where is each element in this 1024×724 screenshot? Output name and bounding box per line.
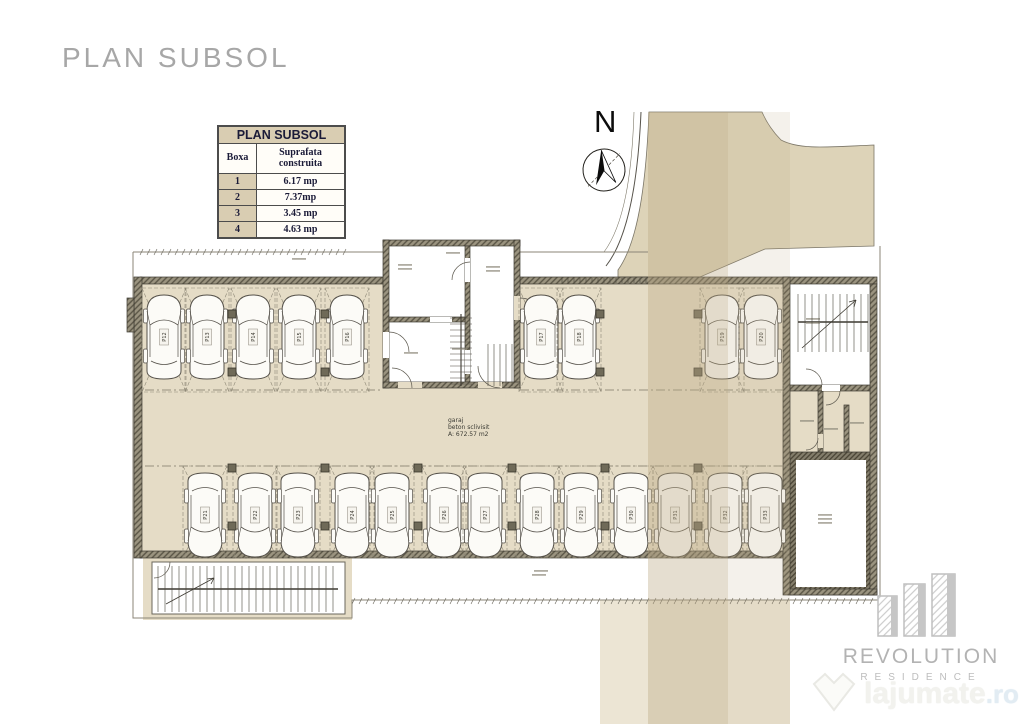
parking-space-label: P21 [201, 507, 210, 523]
north-label: N [594, 104, 616, 139]
watermark-heart-icon [808, 672, 860, 716]
svg-text:P23: P23 [296, 510, 302, 519]
svg-text:P26: P26 [442, 510, 448, 519]
svg-text:P14: P14 [251, 332, 257, 341]
parking-space-label: P13 [203, 329, 212, 345]
parking-space-label: P16 [343, 329, 352, 345]
parking-space-label: P26 [440, 507, 449, 523]
watermark-tld: .ro [986, 679, 1019, 710]
svg-text:P20: P20 [759, 332, 765, 341]
parking-space-label: P14 [249, 329, 258, 345]
svg-text:P19: P19 [720, 332, 726, 341]
parking-space-label: P33 [761, 507, 770, 523]
svg-text:P12: P12 [162, 332, 168, 341]
parking-space-label: P20 [757, 329, 766, 345]
svg-text:P29: P29 [579, 510, 585, 519]
parking-space-label: P30 [627, 507, 636, 523]
svg-text:P25: P25 [390, 510, 396, 519]
svg-text:P21: P21 [203, 510, 209, 519]
parking-space-label: P28 [533, 507, 542, 523]
compass-needle [580, 146, 627, 193]
parking-space-label: P31 [671, 507, 680, 523]
parking-space-label: P29 [577, 507, 586, 523]
buildings-icon [866, 572, 976, 638]
parking-space-label: P12 [160, 329, 169, 345]
parking-space-label: P27 [481, 507, 490, 523]
svg-text:P32: P32 [723, 510, 729, 519]
svg-text:P16: P16 [345, 332, 351, 341]
svg-text:P22: P22 [253, 510, 259, 519]
watermark-text: lajumate [864, 677, 986, 711]
parking-space-label: P24 [348, 507, 357, 523]
svg-text:garaj: garaj [448, 417, 464, 424]
svg-text:P15: P15 [297, 332, 303, 341]
parking-space-label: P25 [388, 507, 397, 523]
parking-space-label: P23 [294, 507, 303, 523]
site-watermark: lajumate .ro [808, 672, 1019, 716]
svg-text:P13: P13 [205, 332, 211, 341]
svg-text:A: 672.57 m2: A: 672.57 m2 [448, 431, 489, 438]
developer-logo: REVOLUTION RESIDENCE [826, 572, 1016, 683]
parking-space-label: P15 [295, 329, 304, 345]
parking-space-label: P22 [251, 507, 260, 523]
parking-space-label: P19 [718, 329, 727, 345]
svg-text:P18: P18 [577, 332, 583, 341]
svg-text:P31: P31 [673, 510, 679, 519]
brand-name: REVOLUTION [826, 645, 1016, 669]
north-compass: N [576, 100, 636, 205]
svg-text:P27: P27 [483, 510, 489, 519]
svg-text:P24: P24 [350, 510, 356, 519]
parking-space-label: P17 [537, 329, 546, 345]
svg-text:P28: P28 [535, 510, 541, 519]
parking-space-label: P18 [575, 329, 584, 345]
svg-text:P30: P30 [629, 510, 635, 519]
floor-plan-page: PLAN SUBSOL PLAN SUBSOL Boxa Suprafata c… [0, 0, 1024, 724]
svg-text:P33: P33 [763, 510, 769, 519]
svg-text:P17: P17 [539, 332, 545, 341]
svg-text:beton sclivisit: beton sclivisit [448, 424, 490, 431]
parking-space-label: P32 [721, 507, 730, 523]
